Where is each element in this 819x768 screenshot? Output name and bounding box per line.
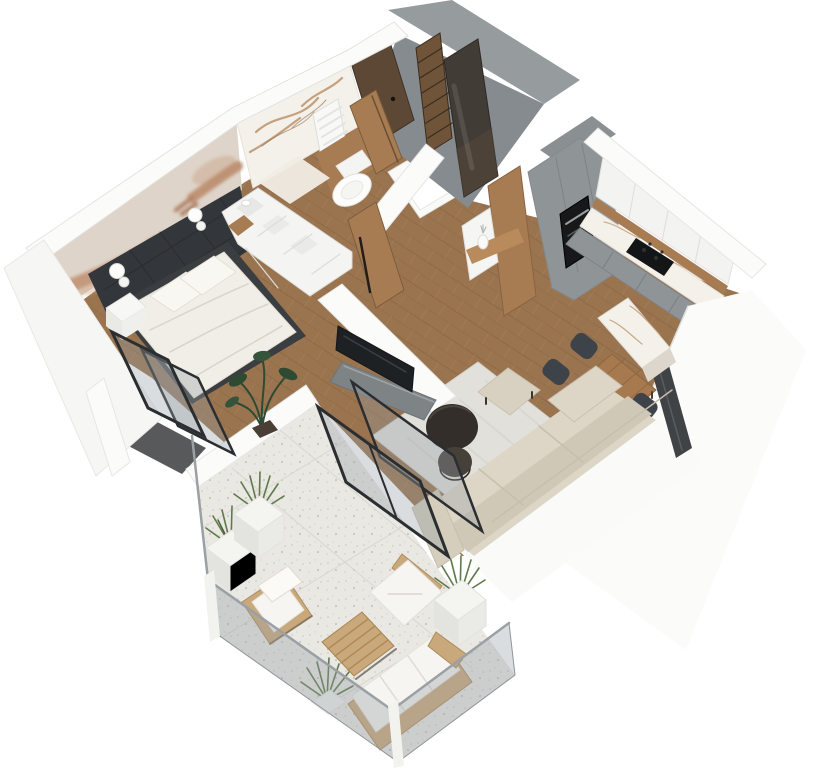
door-handle (391, 97, 395, 101)
floor-plan-render (0, 0, 819, 768)
towel-roll (242, 200, 251, 206)
